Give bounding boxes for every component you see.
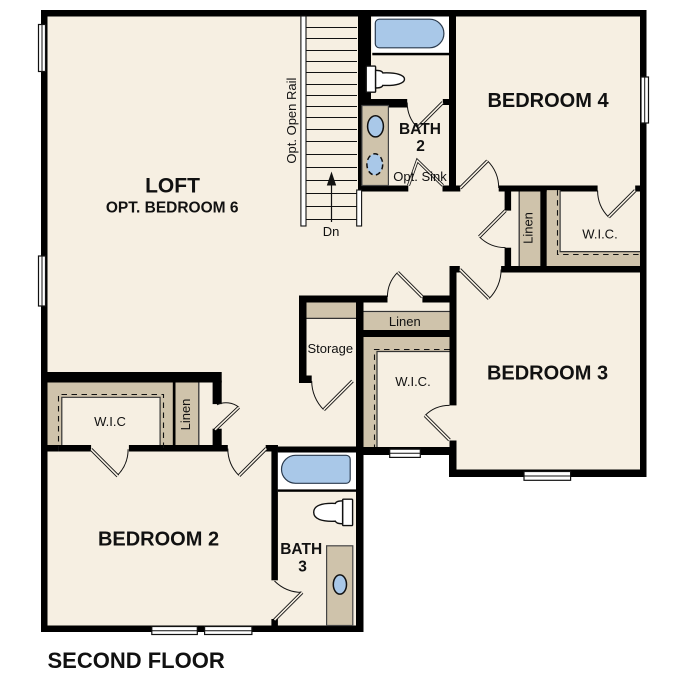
svg-text:Storage: Storage xyxy=(308,341,354,356)
svg-text:W.I.C.: W.I.C. xyxy=(395,374,430,389)
svg-text:W.I.C: W.I.C xyxy=(94,414,126,429)
svg-text:W.I.C.: W.I.C. xyxy=(582,227,617,242)
svg-text:BEDROOM 3: BEDROOM 3 xyxy=(487,363,608,385)
svg-text:BEDROOM 2: BEDROOM 2 xyxy=(98,529,219,551)
svg-text:Linen: Linen xyxy=(389,314,421,329)
svg-text:Opt. Open Rail: Opt. Open Rail xyxy=(284,78,299,164)
svg-text:Linen: Linen xyxy=(520,212,535,244)
svg-text:Opt. Sink: Opt. Sink xyxy=(393,169,447,184)
svg-text:BATH: BATH xyxy=(280,541,322,558)
svg-text:BEDROOM 4: BEDROOM 4 xyxy=(487,90,609,112)
svg-text:Linen: Linen xyxy=(178,399,193,431)
svg-text:BATH: BATH xyxy=(399,121,441,138)
svg-text:SECOND FLOOR: SECOND FLOOR xyxy=(48,648,225,673)
svg-text:LOFT: LOFT xyxy=(145,175,200,198)
svg-text:3: 3 xyxy=(298,559,307,576)
svg-text:2: 2 xyxy=(416,138,425,155)
svg-text:Dn: Dn xyxy=(323,224,340,239)
svg-text:OPT. BEDROOM 6: OPT. BEDROOM 6 xyxy=(106,200,239,217)
